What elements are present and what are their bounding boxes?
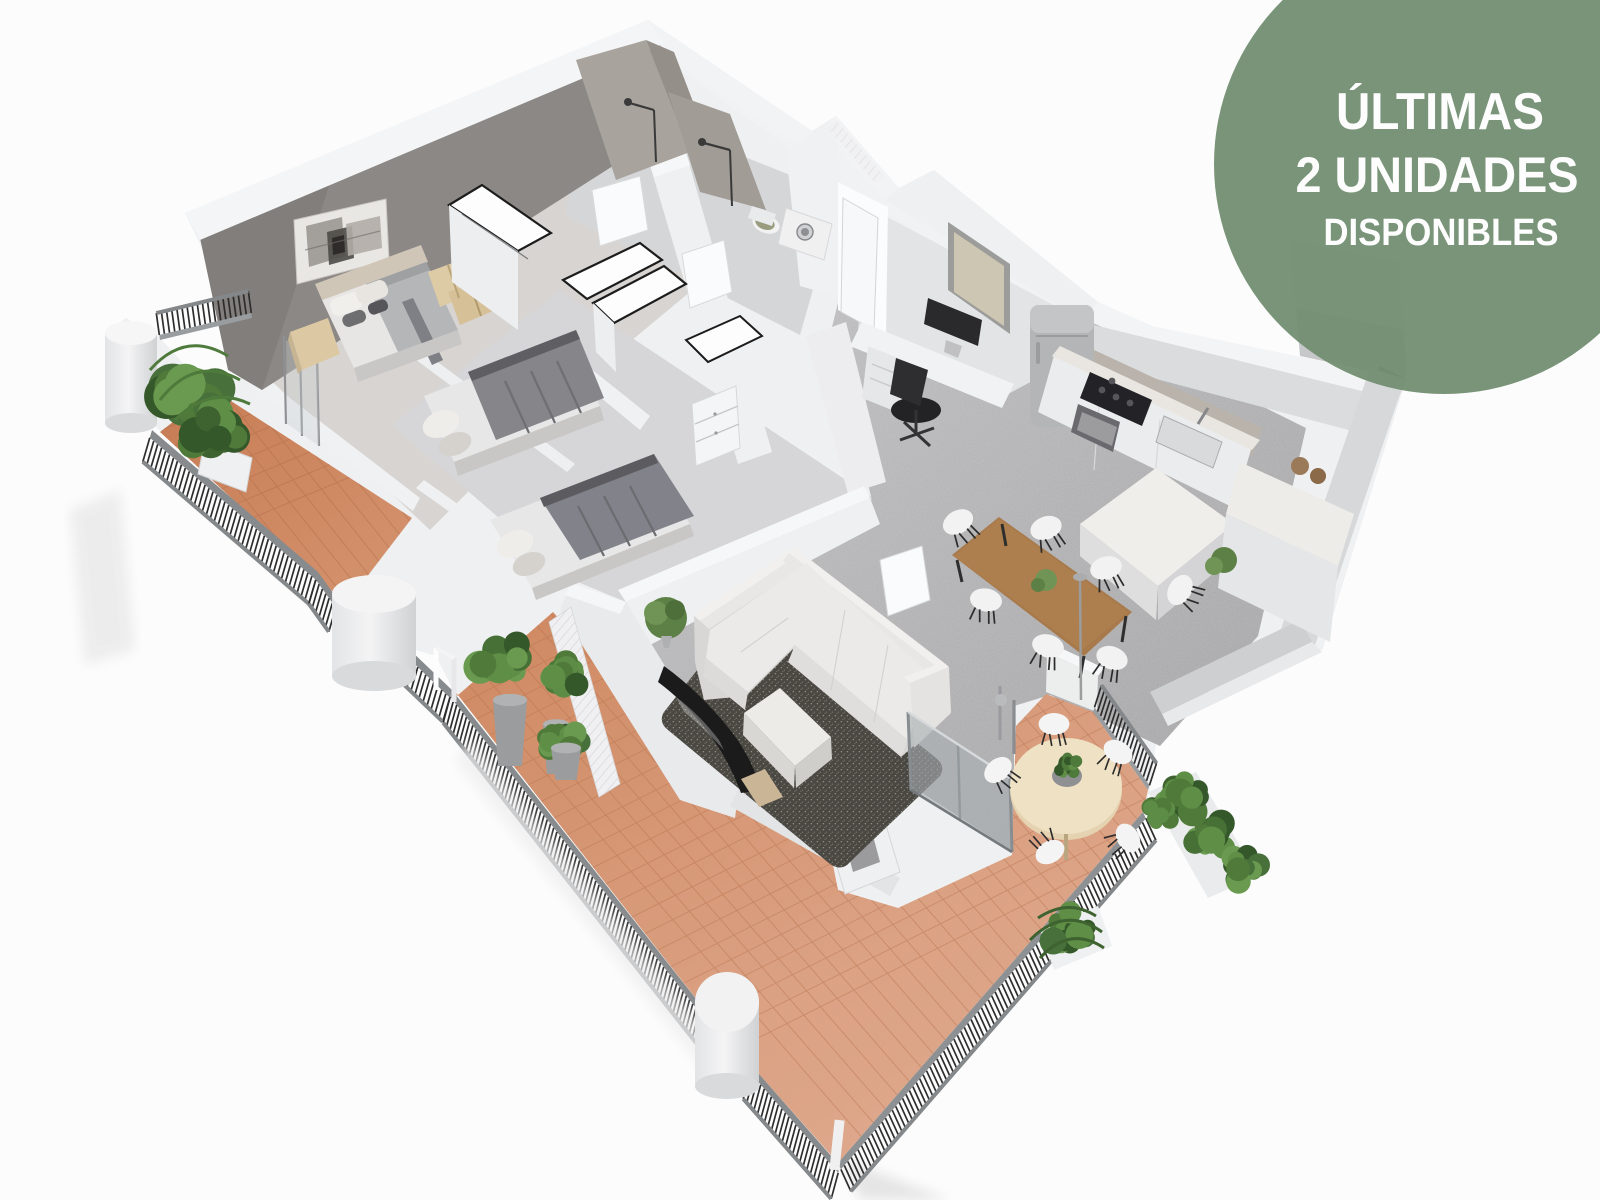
svg-text:2 UNIDADES: 2 UNIDADES (1296, 147, 1579, 203)
svg-text:DISPONIBLES: DISPONIBLES (1324, 212, 1559, 254)
svg-text:ÚLTIMAS: ÚLTIMAS (1336, 83, 1544, 141)
